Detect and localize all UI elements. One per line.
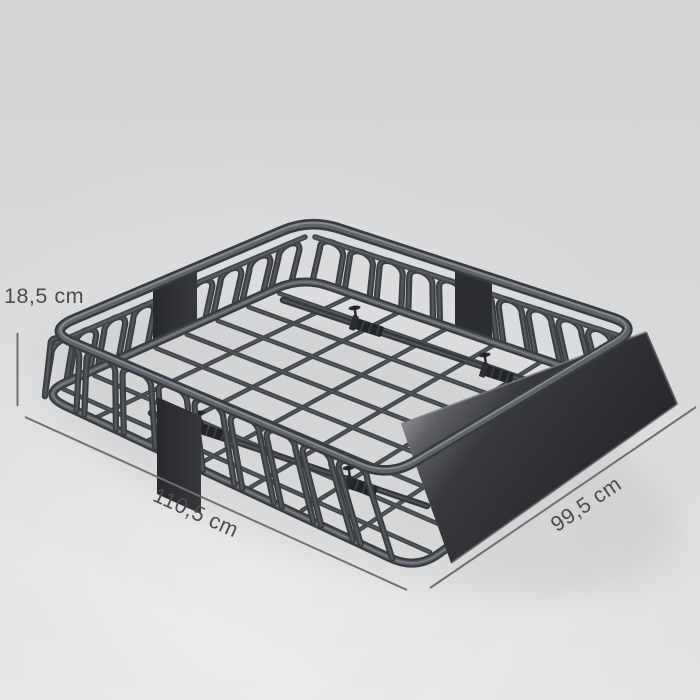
height-dimension-label: 18,5 cm [4, 284, 84, 308]
cargo-basket-render: 18,5 cm 110,5 cm 99,5 cm [0, 0, 700, 700]
product-dimension-figure: 18,5 cm 110,5 cm 99,5 cm [0, 0, 700, 700]
